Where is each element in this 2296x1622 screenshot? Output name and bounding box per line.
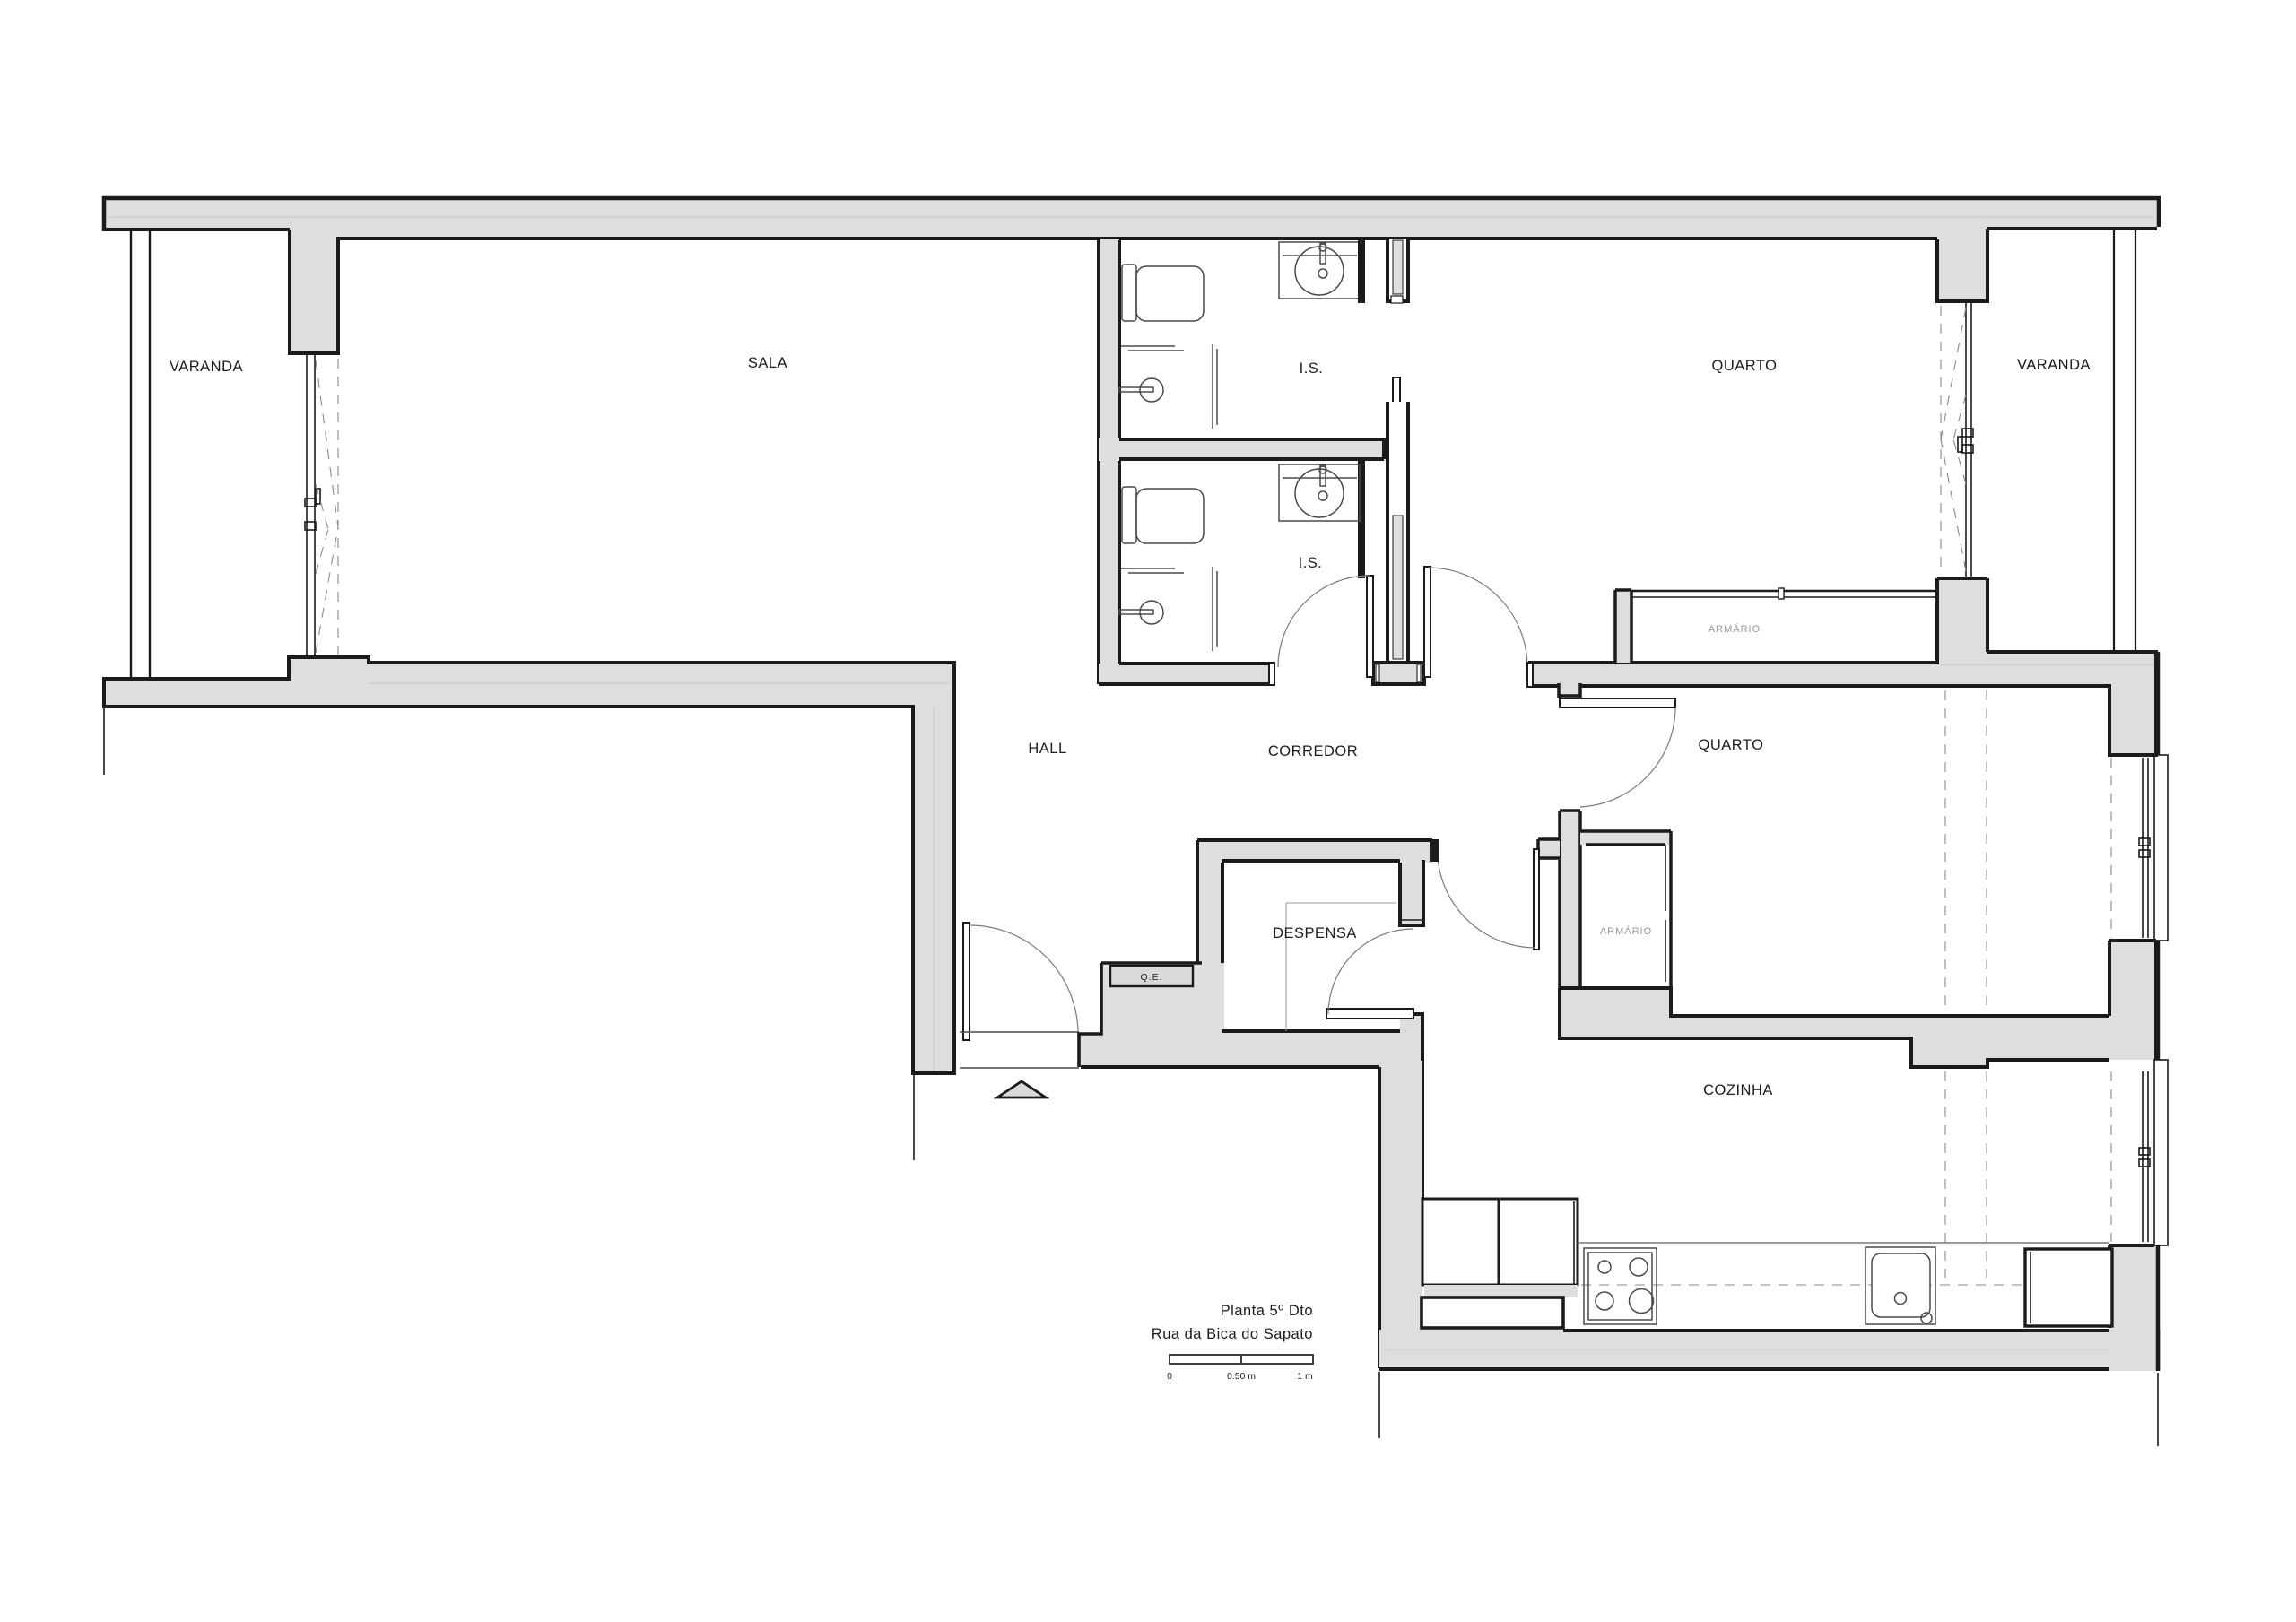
svg-text:QUARTO: QUARTO: [1712, 358, 1778, 374]
svg-text:CORREDOR: CORREDOR: [1268, 743, 1358, 759]
svg-text:Rua da Bica do Sapato: Rua da Bica do Sapato: [1152, 1326, 1313, 1342]
svg-text:I.S.: I.S.: [1300, 360, 1324, 377]
svg-text:QUARTO: QUARTO: [1699, 737, 1764, 753]
svg-text:SALA: SALA: [748, 355, 787, 371]
svg-text:Planta 5º Dto: Planta 5º Dto: [1221, 1303, 1313, 1319]
svg-text:VARANDA: VARANDA: [170, 359, 243, 375]
svg-text:VARANDA: VARANDA: [2017, 357, 2091, 373]
svg-text:DESPENSA: DESPENSA: [1273, 925, 1357, 941]
svg-text:I.S.: I.S.: [1299, 555, 1323, 571]
svg-text:0.50 m: 0.50 m: [1227, 1371, 1256, 1382]
svg-text:Q.E.: Q.E.: [1140, 972, 1162, 983]
svg-text:HALL: HALL: [1028, 741, 1066, 757]
svg-text:ARMÁRIO: ARMÁRIO: [1709, 623, 1761, 635]
svg-text:0: 0: [1167, 1371, 1172, 1382]
svg-text:COZINHA: COZINHA: [1703, 1082, 1773, 1098]
svg-text:1 m: 1 m: [1297, 1371, 1313, 1382]
svg-text:ARMÁRIO: ARMÁRIO: [1600, 925, 1652, 937]
